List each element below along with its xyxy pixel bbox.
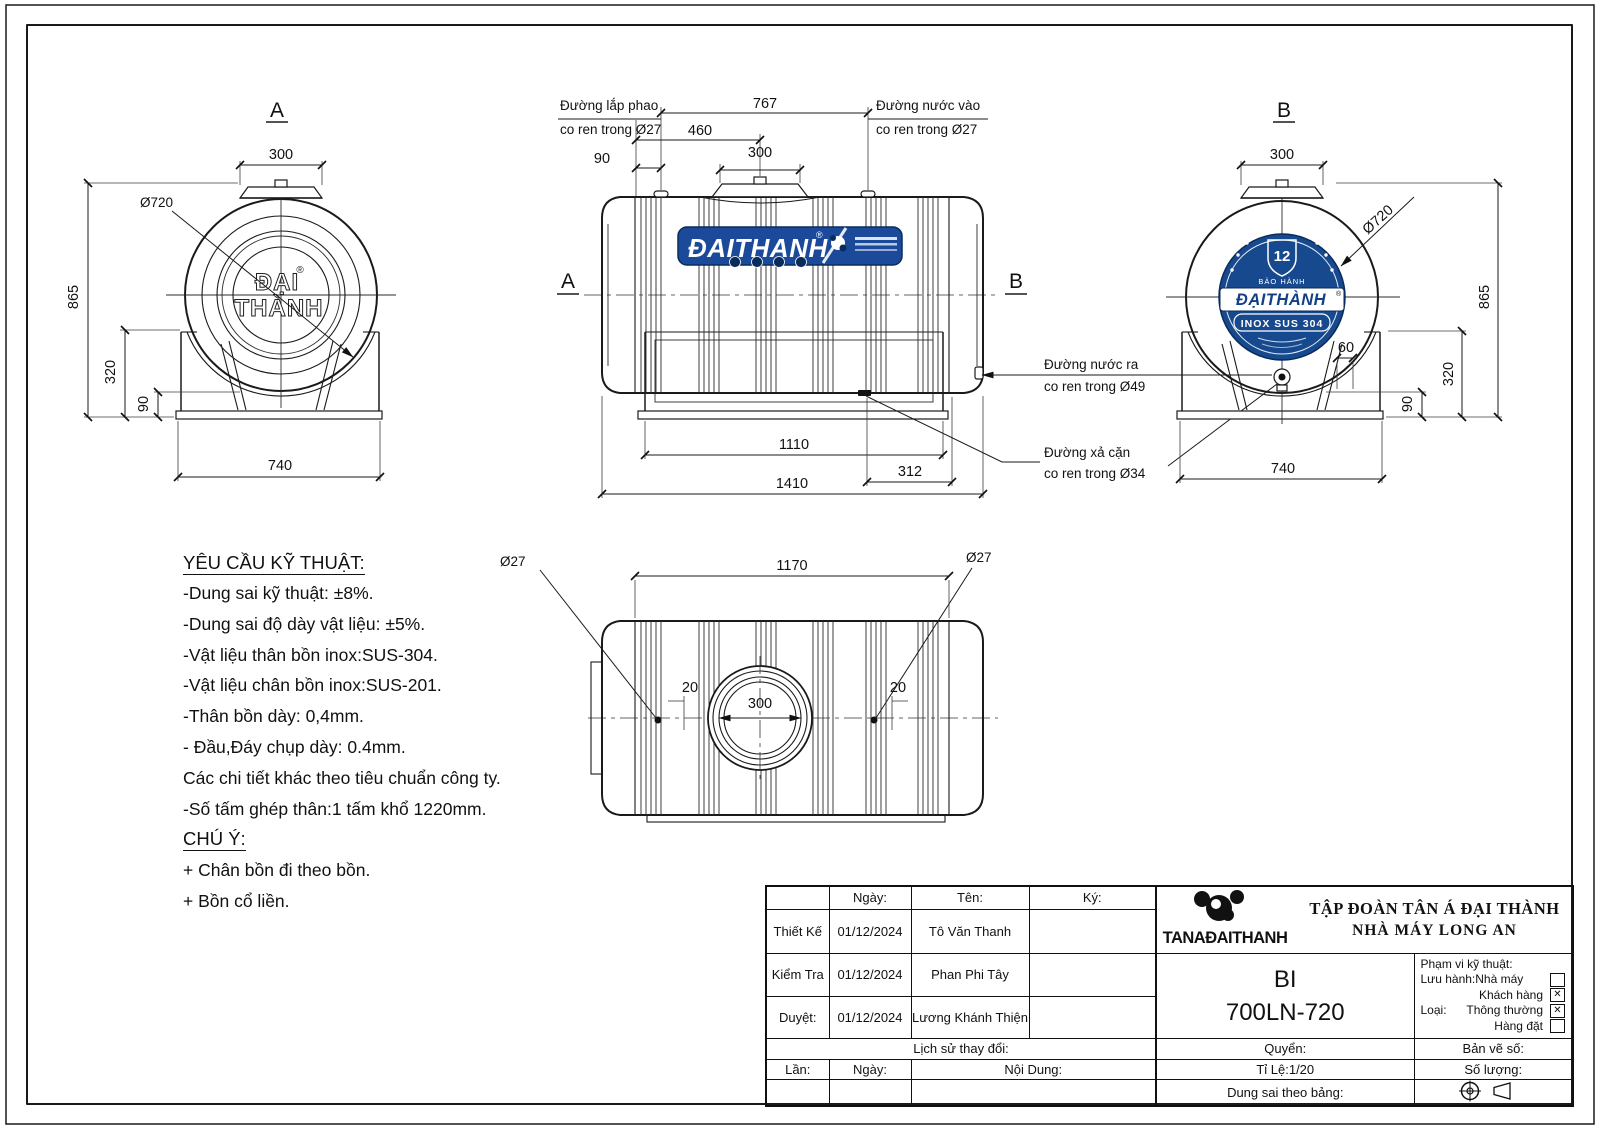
scope-row: Loại: Thông thường ✕ (1421, 1003, 1569, 1019)
front-dim-height: 865 (66, 285, 82, 309)
rear-view: B (1166, 99, 1502, 483)
tb-empty-cell (911, 1079, 1156, 1106)
tanadaithanh-logo: TANAĐAITHANH (1157, 887, 1297, 952)
front-stand (176, 332, 382, 419)
tb-quantity: Số lượng: (1414, 1059, 1573, 1079)
tb-product-cell: BI 700LN-720 (1156, 953, 1414, 1038)
side-drain-fitting (858, 390, 871, 396)
dim-1410: 1410 (776, 476, 808, 492)
badge-registered-mark: ® (1336, 290, 1342, 298)
top-view: 300 Ø27 Ø27 20 20 1170 (500, 550, 998, 822)
tb-sign-cell (1029, 909, 1156, 953)
rear-dim-stand: 320 (1441, 362, 1457, 386)
tb-book: Quyển: (1156, 1038, 1414, 1059)
scope-row: Hàng đặt (1421, 1019, 1569, 1035)
tb-drawing-no: Bản vẽ số: (1414, 1038, 1573, 1059)
rear-manhole-cap (1241, 180, 1323, 198)
label-drain-1: Đường xả cặn (1044, 445, 1130, 460)
tb-tolerance: Dung sai theo bảng: (1156, 1079, 1414, 1106)
label-float-2: co ren trong Ø27 (560, 122, 661, 137)
tb-role: Thiết Kế (766, 909, 829, 953)
label-outlet-1: Đường nước ra (1044, 357, 1139, 372)
tb-date: 01/12/2024 (829, 953, 911, 996)
dim-90: 90 (594, 151, 610, 167)
svg-text:THÀNH: THÀNH (235, 294, 324, 322)
tb-empty-cell (766, 886, 829, 909)
inlet-fitting (861, 191, 875, 197)
tb-history: Lịch sử thay đổi: (766, 1038, 1156, 1059)
section-marker-a: A (561, 270, 575, 293)
label-drain-2: co ren trong Ø34 (1044, 466, 1146, 481)
top-manhole: 300 (708, 656, 812, 780)
checkbox-normal: ✕ (1550, 1004, 1565, 1018)
projection-symbols (1458, 1080, 1528, 1102)
band-registered-mark: ® (816, 230, 823, 240)
product-code: BI (1157, 963, 1414, 996)
front-dim-stand: 320 (103, 360, 119, 384)
label-inlet-2: co ren trong Ø27 (876, 122, 977, 137)
tb-role: Duyệt: (766, 996, 829, 1038)
dim-312: 312 (898, 464, 922, 480)
badge-warranty-text: BẢO HÀNH (1258, 277, 1305, 286)
top-dim-manhole: 300 (748, 696, 772, 712)
label-float-1: Đường lắp phao (560, 98, 658, 113)
note-line: -Vật liệu thân bồn inox:SUS-304. (183, 640, 528, 671)
rear-dim-base: 90 (1400, 396, 1416, 412)
scope-row: Lưu hành:Nhà máy (1421, 972, 1569, 988)
rear-view-label: B (1277, 99, 1291, 122)
checkbox-custom-order (1550, 1019, 1565, 1033)
rear-dim-diameter: Ø720 (1360, 202, 1397, 238)
dim-767: 767 (753, 96, 777, 112)
company-name: TẬP ĐOÀN TÂN Á ĐẠI THÀNH NHÀ MÁY LONG AN (1297, 899, 1572, 940)
front-view-label: A (270, 99, 284, 122)
side-outlet-fitting (975, 367, 983, 379)
note-line: -Thân bồn dày: 0,4mm. (183, 701, 528, 732)
rear-dim-cap: 300 (1270, 147, 1294, 163)
scope-row: Khách hàng ✕ (1421, 988, 1569, 1004)
tb-sign-cell (1029, 996, 1156, 1038)
front-view: A ĐẠI TH (66, 99, 396, 481)
rear-dim-height: 865 (1477, 285, 1493, 309)
section-marker-b: B (1009, 270, 1023, 293)
label-outlet-2: co ren trong Ø49 (1044, 379, 1145, 394)
badge-number: 12 (1274, 248, 1291, 265)
title-block: Ngày: Tên: Ký: TANAĐAITHANH TẬP ĐOÀN TÂN… (765, 885, 1574, 1107)
note-line: -Số tấm ghép thân:1 tấm khổ 1220mm. (183, 794, 528, 825)
tb-role: Kiểm Tra (766, 953, 829, 996)
notes-attention-title: CHÚ Ý: (183, 824, 528, 855)
note-line: -Vật liệu chân bồn inox:SUS-201. (183, 670, 528, 701)
front-manhole-cap (240, 180, 322, 198)
front-dim-diameter: Ø720 (140, 195, 173, 210)
tb-name: Lương Khánh Thiện (911, 996, 1029, 1038)
note-line: Các chi tiết khác theo tiêu chuẩn công t… (183, 763, 528, 794)
dim-460: 460 (688, 123, 712, 139)
tb-rev-content: Nội Dung: (911, 1059, 1156, 1079)
tb-scope-cell: Phạm vi kỹ thuật: Lưu hành:Nhà máy Khách… (1414, 953, 1573, 1038)
tb-header-sign: Ký: (1029, 886, 1156, 909)
dim-300-manhole: 300 (748, 145, 772, 161)
front-logo-registered-mark: ® (296, 265, 304, 276)
tb-company-cell: TANAĐAITHANH TẬP ĐOÀN TÂN Á ĐẠI THÀNH NH… (1156, 886, 1573, 953)
front-dim-base: 90 (136, 396, 152, 412)
tb-name: Tô Văn Thanh (911, 909, 1029, 953)
tb-date: 01/12/2024 (829, 909, 911, 953)
checkbox-factory (1550, 973, 1565, 987)
top-dim-length: 1170 (776, 558, 807, 574)
tb-header-date: Ngày: (829, 886, 911, 909)
checkbox-customer: ✕ (1550, 988, 1565, 1002)
scope-title: Phạm vi kỹ thuật: (1421, 957, 1569, 973)
rear-dim-offset: 60 (1338, 340, 1354, 356)
rear-warranty-badge: 12 BẢO HÀNH ĐẠITHÀNH ® INOX SUS 304 (1219, 228, 1345, 360)
daithanh-band-logo: ĐAITHANH ® (678, 227, 902, 268)
front-dimensions: 300 Ø720 865 320 90 740 (66, 147, 380, 481)
tb-empty-cell (829, 1079, 911, 1106)
front-dim-cap: 300 (269, 147, 293, 163)
front-embossed-logo: ĐẠI THÀNH ® (235, 265, 324, 322)
tb-header-name: Tên: (911, 886, 1029, 909)
rear-dim-width: 740 (1271, 461, 1295, 477)
technical-drawing-page: A ĐẠI TH (0, 0, 1600, 1130)
note-line: - Đầu,Đáy chụp dày: 0.4mm. (183, 732, 528, 763)
badge-brand-text: ĐẠITHÀNH (1236, 290, 1327, 309)
logo-wordmark: TANAĐAITHANH (1163, 929, 1288, 947)
side-stand (638, 332, 948, 419)
tb-empty-cell (766, 1079, 829, 1106)
tb-name: Phan Phi Tây (911, 953, 1029, 996)
tb-sign-cell (1029, 953, 1156, 996)
note-line: + Chân bồn đi theo bồn. (183, 855, 528, 886)
top-dim-fitting-right: Ø27 (966, 550, 992, 565)
tb-rev-date: Ngày: (829, 1059, 911, 1079)
notes-title: YÊU CẦU KỸ THUẬT: (183, 551, 528, 578)
rear-drain-fitting (1274, 369, 1290, 391)
badge-material-text: INOX SUS 304 (1241, 318, 1324, 330)
side-manhole (700, 177, 820, 203)
label-inlet-1: Đường nước vào (876, 98, 980, 113)
top-dimension-length: 1170 (635, 558, 949, 618)
float-fitting (654, 191, 668, 197)
tb-rev: Lần: (766, 1059, 829, 1079)
svg-text:ĐẠI: ĐẠI (255, 269, 299, 296)
band-brand-text: ĐAITHANH (688, 233, 828, 263)
top-dim-offset-right: 20 (890, 680, 906, 696)
tb-symbols-cell (1414, 1079, 1573, 1106)
tb-date: 01/12/2024 (829, 996, 911, 1038)
note-line: -Dung sai độ dày vật liệu: ±5%. (183, 609, 528, 640)
note-line: -Dung sai kỹ thuật: ±8%. (183, 578, 528, 609)
dim-1110: 1110 (779, 437, 809, 453)
front-dim-width: 740 (268, 458, 292, 474)
top-dim-offset-left: 20 (682, 680, 698, 696)
tb-scale: Tỉ Lệ:1/20 (1156, 1059, 1414, 1079)
side-view: ĐAITHANH ® A B 767 460 (557, 96, 1027, 498)
product-model: 700LN-720 (1157, 996, 1414, 1029)
note-line: + Bồn cổ liền. (183, 886, 528, 917)
technical-notes: YÊU CẦU KỸ THUẬT: -Dung sai kỹ thuật: ±8… (183, 551, 528, 917)
